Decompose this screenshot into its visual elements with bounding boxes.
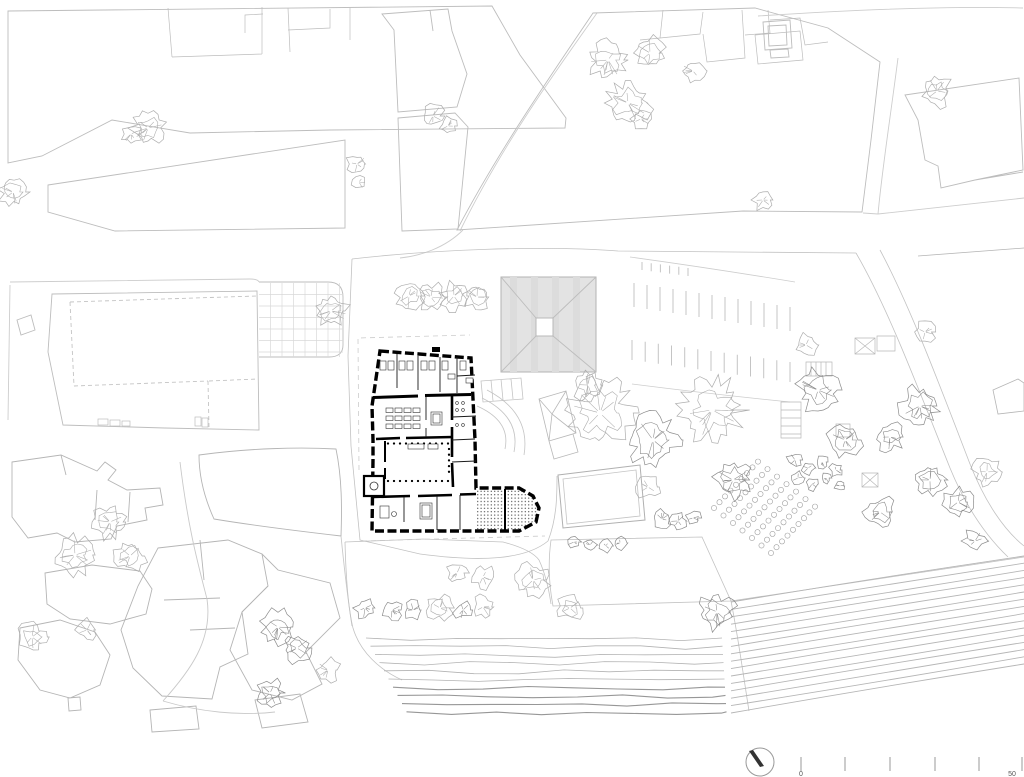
vineyard-row xyxy=(398,695,726,698)
tree-branch xyxy=(649,488,654,491)
tree-branch xyxy=(359,179,361,182)
tree-branch xyxy=(807,346,813,349)
village-cluster-mid xyxy=(45,565,152,624)
tree-branch xyxy=(616,543,619,544)
tree-canopy xyxy=(515,561,551,598)
tree-branch xyxy=(950,503,957,509)
parking-band xyxy=(634,283,790,331)
tree xyxy=(18,621,49,650)
tree-canopy xyxy=(796,332,819,355)
tree-canopy xyxy=(406,599,422,620)
tree-canopy xyxy=(574,370,603,402)
tree-branch xyxy=(464,611,467,615)
tree xyxy=(568,536,582,548)
tree-canopy xyxy=(668,513,686,530)
tree-branch xyxy=(938,91,945,92)
tree-branch xyxy=(653,442,654,456)
tree-branch xyxy=(32,625,34,636)
tree-branch xyxy=(694,516,699,517)
tree-canopy xyxy=(705,599,730,625)
tree xyxy=(683,63,708,83)
parking-band xyxy=(632,340,790,382)
orchard-shrub xyxy=(801,516,806,521)
parking-rows xyxy=(632,262,790,382)
tree-branch xyxy=(484,577,489,579)
tree-branch xyxy=(705,607,716,611)
orchard-shrub xyxy=(807,510,812,515)
orchard-shrub xyxy=(786,514,791,519)
tree xyxy=(260,608,294,647)
tree-branch xyxy=(411,604,412,610)
tree-branch xyxy=(914,408,919,417)
tree-branch xyxy=(271,687,273,692)
vineyard-row xyxy=(380,662,724,665)
vineyard-row-diagonal xyxy=(731,570,1024,616)
block-ne-divisions xyxy=(640,10,828,64)
orchard-shrub xyxy=(736,515,741,520)
tree-branch xyxy=(355,165,356,172)
tree-branch xyxy=(484,608,489,616)
orchard-shrub xyxy=(771,512,776,517)
tree xyxy=(55,533,95,578)
tree-branch xyxy=(800,343,805,345)
tree xyxy=(801,463,816,475)
tree-canopy xyxy=(113,543,148,571)
tree-canopy xyxy=(971,458,1003,487)
site-plan-sheet: 0 50 xyxy=(0,0,1024,777)
tree-canopy xyxy=(557,594,583,619)
tree-branch xyxy=(361,608,365,609)
tree-branch xyxy=(815,392,817,399)
tree-branch xyxy=(106,523,109,530)
vineyard-row xyxy=(371,646,723,650)
tree-branch xyxy=(929,92,936,97)
orchard-shrub xyxy=(733,482,738,487)
vineyard-row-diagonal xyxy=(731,592,1024,639)
tree-branch xyxy=(609,62,617,75)
tree-branch xyxy=(694,518,699,520)
tree-branch xyxy=(715,411,734,421)
orchard-shrub xyxy=(770,531,775,536)
block-n-mid-lower xyxy=(398,113,468,231)
orchard-shrub xyxy=(777,506,782,511)
tree-branch xyxy=(407,609,412,610)
tree-branch xyxy=(320,664,327,669)
vineyard-rows-south xyxy=(366,638,727,715)
colonnade-dot xyxy=(393,480,395,482)
tree-branch xyxy=(663,519,667,520)
tree xyxy=(515,561,551,598)
tree-branch xyxy=(716,604,717,610)
tree-branch xyxy=(320,671,327,675)
tree-canopy xyxy=(786,454,803,466)
colonnade-dot xyxy=(448,465,450,467)
tree-canopy xyxy=(426,594,454,621)
tree-canopy xyxy=(382,602,402,621)
tree-branch xyxy=(846,441,851,447)
vineyard-row-diagonal xyxy=(731,650,1024,699)
orchard-shrub xyxy=(759,472,764,477)
tree-canopy xyxy=(804,376,831,405)
tree-branch xyxy=(431,289,432,296)
tree-branch xyxy=(793,478,797,480)
tree-canopy xyxy=(636,476,661,498)
colonnade-dot xyxy=(441,442,443,444)
tree-branch xyxy=(678,516,679,521)
tree-branch xyxy=(358,165,361,167)
tree-branch xyxy=(809,485,812,489)
tree-branch xyxy=(563,609,569,612)
tree-branch xyxy=(881,513,888,518)
tree-branch xyxy=(800,345,806,347)
tree-branch xyxy=(429,117,432,123)
plot-hatch-2 xyxy=(781,402,801,438)
grid-lines xyxy=(259,283,343,357)
tree-canopy xyxy=(806,479,818,492)
orchard-shrub xyxy=(760,524,765,529)
tree-branch xyxy=(609,62,613,74)
tree xyxy=(942,486,974,517)
tree-branch xyxy=(642,488,647,491)
tree-branch xyxy=(366,609,369,612)
tree-branch xyxy=(806,340,808,344)
tree-branch xyxy=(400,297,408,301)
village-cluster-sw xyxy=(18,620,110,711)
north-arrow-and-scale: 0 50 xyxy=(746,748,1022,777)
tree-canopy xyxy=(604,81,653,122)
tree-branch xyxy=(916,408,919,415)
orchard-shrub xyxy=(754,478,759,483)
orchard-shrub xyxy=(758,491,763,496)
plot-hatch-1 xyxy=(806,362,832,376)
orchard-dots xyxy=(711,459,817,556)
tree-branch xyxy=(920,330,925,332)
tree-branch xyxy=(758,201,762,207)
colonnade-dot xyxy=(448,459,450,461)
tree-branch xyxy=(298,649,306,654)
scale-bar-ticks xyxy=(801,757,1022,771)
vineyard-row-diagonal xyxy=(731,578,1024,625)
vineyard-row-diagonal xyxy=(731,585,1024,632)
tree-branch xyxy=(840,431,845,439)
far-right-building xyxy=(918,248,1024,414)
tree-canopy xyxy=(522,570,544,588)
orchard-shrub xyxy=(769,480,774,485)
tree-canopy xyxy=(751,192,773,211)
tree-branch xyxy=(959,503,967,508)
tree xyxy=(604,81,653,122)
tree-branch xyxy=(534,581,540,590)
tree-branch xyxy=(679,522,682,525)
vineyard-row xyxy=(384,670,724,674)
tree-branch xyxy=(480,578,483,584)
tree xyxy=(634,35,667,65)
orchard-shrub xyxy=(755,530,760,535)
entrance-mark xyxy=(432,347,440,352)
tree xyxy=(406,599,422,620)
tree-branch xyxy=(653,429,655,438)
tree-branch xyxy=(813,484,817,487)
tree-branch xyxy=(703,413,711,435)
tree xyxy=(599,539,613,554)
orchard-shrub xyxy=(779,539,784,544)
tree xyxy=(630,410,684,467)
block-ne-large xyxy=(457,8,880,230)
tree-branch xyxy=(393,606,399,609)
tree-canopy xyxy=(961,530,989,550)
colonnade-dot xyxy=(417,480,419,482)
tree-branch xyxy=(571,609,576,614)
orchard-shrub xyxy=(756,510,761,515)
tree-branch xyxy=(655,431,664,438)
village-field-round xyxy=(199,448,341,536)
tree-canopy xyxy=(453,601,473,618)
orchard-shrub xyxy=(741,509,746,514)
tree-branch xyxy=(604,544,606,546)
orchard-shrub xyxy=(781,520,786,525)
main-building-plan xyxy=(364,347,539,531)
tree-canopy xyxy=(822,473,832,484)
tree xyxy=(822,473,832,484)
tree-canopy xyxy=(470,287,487,305)
tree-branch xyxy=(27,638,31,643)
tree-canopy xyxy=(630,410,684,467)
tree xyxy=(574,370,603,402)
tree-branch xyxy=(728,482,732,491)
tree-canopy xyxy=(447,565,470,582)
scale-label-zero: 0 xyxy=(799,771,803,777)
orchard-shrub xyxy=(785,533,790,538)
tree-branch xyxy=(602,415,615,427)
tree xyxy=(862,496,894,527)
orchard-shrub xyxy=(797,502,802,507)
west-building-roof-dashed xyxy=(70,296,258,428)
tree xyxy=(636,476,661,498)
tree-canopy xyxy=(562,601,577,618)
tree-branch xyxy=(263,687,269,692)
colonnade-dot xyxy=(405,480,407,482)
tree xyxy=(426,594,454,621)
tree xyxy=(316,296,351,325)
colonnade-dot xyxy=(448,448,450,450)
tree-branch xyxy=(366,608,370,609)
small-hip-house xyxy=(539,391,578,459)
block-nw-outline xyxy=(8,6,566,163)
tree-branch xyxy=(602,402,613,411)
tree-branch xyxy=(425,290,430,296)
tree xyxy=(447,565,470,582)
plot-sq-2 xyxy=(877,336,895,351)
vineyard-row xyxy=(366,638,722,641)
tree-branch xyxy=(462,605,463,609)
tree-branch xyxy=(684,66,692,70)
tree-branch xyxy=(131,135,132,140)
street-curve xyxy=(400,13,597,258)
tree-branch xyxy=(658,515,662,519)
tree xyxy=(353,599,375,619)
vineyard-row-diagonal xyxy=(731,614,1024,662)
tree-branch xyxy=(591,60,606,61)
tree-canopy xyxy=(654,509,671,529)
tree-branch xyxy=(533,582,534,590)
tree xyxy=(712,463,751,502)
colonnade-dot xyxy=(441,480,443,482)
stair-tower xyxy=(364,476,384,496)
orchard-shrub xyxy=(774,545,779,550)
tree xyxy=(474,594,493,618)
tree-branch xyxy=(714,614,717,620)
tree xyxy=(668,513,686,530)
tree-branch xyxy=(799,477,803,478)
scale-label-fifty: 50 xyxy=(1008,771,1016,777)
tree-branch xyxy=(655,431,663,438)
tree-branch xyxy=(88,631,91,635)
tree-canopy xyxy=(915,468,948,497)
tree xyxy=(961,530,989,550)
paved-grid-courtyard xyxy=(259,283,343,357)
tree-branch xyxy=(569,542,574,544)
tree-branch xyxy=(923,333,925,339)
tree-branch xyxy=(432,298,435,302)
tree-branch xyxy=(364,609,365,617)
block-n-mid xyxy=(382,9,467,112)
tree-canopy xyxy=(584,540,598,550)
orchard-shrub xyxy=(782,501,787,506)
tree xyxy=(91,506,127,541)
village-roads xyxy=(163,462,352,714)
village-cluster-east xyxy=(230,554,340,700)
tree-canopy xyxy=(463,287,489,310)
vineyard-row xyxy=(375,654,723,657)
tree-branch xyxy=(483,578,486,584)
tree-branch xyxy=(77,550,91,554)
orchard-shrub xyxy=(768,550,773,555)
orchard-shrub xyxy=(812,504,817,509)
tree-branch xyxy=(523,581,532,590)
tree-branch xyxy=(648,442,653,458)
orchard-shrub xyxy=(788,495,793,500)
orchard-shrub xyxy=(773,493,778,498)
tree xyxy=(915,468,948,497)
tree-branch xyxy=(923,477,929,480)
colonnade-dot xyxy=(399,442,401,444)
tree-branch xyxy=(649,54,650,63)
tree xyxy=(472,566,494,591)
village-cluster-north xyxy=(12,455,163,542)
pool-inner xyxy=(563,470,640,524)
orchard-shrub xyxy=(711,505,716,510)
vineyard-row-diagonal xyxy=(731,563,1024,609)
tree-branch xyxy=(958,493,959,501)
tree-branch xyxy=(636,119,641,121)
tree-canopy xyxy=(120,546,138,567)
orchard-shrub xyxy=(765,467,770,472)
tree-branch xyxy=(655,442,664,449)
tree-branch xyxy=(132,135,134,138)
tree-branch xyxy=(804,468,807,472)
west-building-outline xyxy=(48,291,259,430)
tree-canopy xyxy=(792,471,806,485)
tree-branch xyxy=(325,312,330,319)
tree-branch xyxy=(589,415,598,424)
tree xyxy=(439,116,457,133)
tree-branch xyxy=(676,522,678,525)
tree xyxy=(877,422,904,453)
tree-branch xyxy=(822,463,824,467)
tree-canopy xyxy=(712,463,751,502)
tree-branch xyxy=(455,288,462,295)
tree-branch xyxy=(764,201,769,205)
tree-canopy xyxy=(439,116,457,133)
tree-canopy xyxy=(580,391,622,433)
tree-canopy xyxy=(942,486,974,517)
orchard-shrub xyxy=(767,499,772,504)
vineyard-row-diagonal xyxy=(731,621,1024,669)
vineyard-row-diagonal xyxy=(731,635,1024,683)
vineyard-row-diagonal xyxy=(731,606,1024,653)
vineyard-row-diagonal xyxy=(731,628,1024,676)
tree-branch xyxy=(764,197,767,200)
tree xyxy=(922,76,951,109)
tree-branch xyxy=(607,546,609,548)
tree xyxy=(796,332,819,355)
block-w-wedge xyxy=(48,140,345,231)
colonnade-dot xyxy=(405,442,407,444)
tree-canopy xyxy=(599,539,613,554)
tree-canopy xyxy=(636,423,669,459)
tree-canopy xyxy=(351,176,364,188)
tree-branch xyxy=(643,54,649,59)
tree-branch xyxy=(352,163,356,164)
colonnade-dot xyxy=(423,480,425,482)
orchard-shrub xyxy=(749,535,754,540)
tree xyxy=(751,192,773,211)
tree-branch xyxy=(803,466,807,467)
tree-canopy xyxy=(826,425,864,459)
tree-canopy xyxy=(676,375,750,444)
tree-branch xyxy=(391,611,392,618)
tree-canopy xyxy=(877,422,904,453)
orchard-shrub xyxy=(792,508,797,513)
vineyard-rows-southeast xyxy=(731,556,1024,713)
tree-branch xyxy=(809,466,812,468)
orchard-shrub xyxy=(755,459,760,464)
tree xyxy=(463,287,489,310)
orchard-shrub xyxy=(796,521,801,526)
tree-branch xyxy=(455,291,461,296)
vineyard-row-diagonal xyxy=(731,599,1024,646)
block-ne-corner xyxy=(905,78,1023,188)
colonnade-dot xyxy=(447,480,449,482)
orchard-shrub xyxy=(763,486,768,491)
tree-branch xyxy=(455,297,460,304)
east-road xyxy=(856,250,1024,557)
tree-branch xyxy=(826,478,828,481)
vineyard-row xyxy=(402,703,726,706)
colonnade-dot xyxy=(448,471,450,473)
tree-branch xyxy=(590,542,592,545)
tree-canopy xyxy=(835,429,856,450)
orchard-shrub xyxy=(774,474,779,479)
tree-branch xyxy=(280,627,291,628)
orchard-shrub xyxy=(784,482,789,487)
orchard-shrub xyxy=(752,497,757,502)
tree xyxy=(424,103,444,124)
tree-branch xyxy=(110,524,111,531)
grid-court-outline xyxy=(259,282,343,357)
orchard-shrub xyxy=(747,503,752,508)
tree-branch xyxy=(298,641,307,648)
